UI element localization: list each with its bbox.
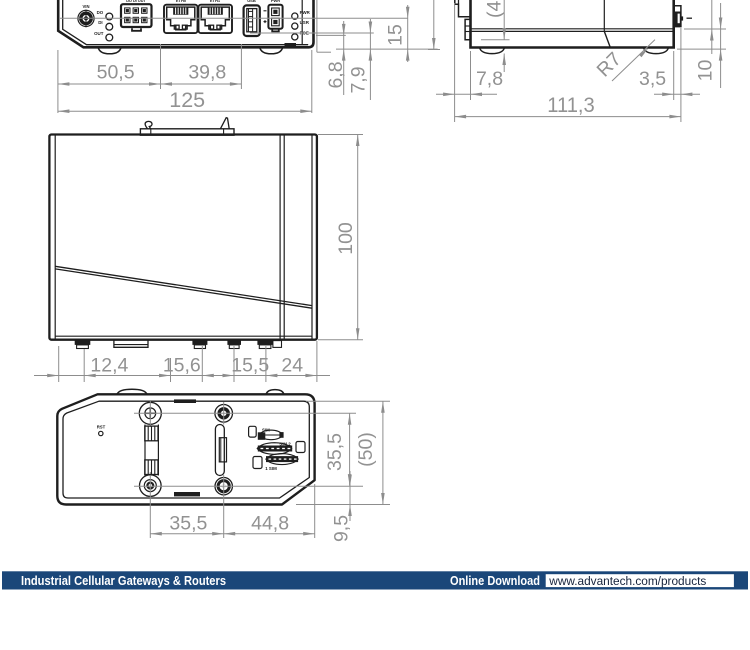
svg-text:35,5: 35,5 bbox=[169, 512, 207, 534]
svg-text:7,9: 7,9 bbox=[348, 66, 370, 93]
svg-text:15,5: 15,5 bbox=[231, 355, 269, 377]
svg-text:35,5: 35,5 bbox=[324, 433, 346, 471]
svg-text:USB: USB bbox=[247, 0, 256, 3]
svg-text:VIN: VIN bbox=[83, 4, 90, 9]
svg-text:(50): (50) bbox=[355, 432, 377, 467]
svg-text:50,5: 50,5 bbox=[97, 61, 135, 83]
svg-text:100: 100 bbox=[335, 222, 357, 255]
svg-text:RST: RST bbox=[97, 424, 106, 429]
svg-text:7,8: 7,8 bbox=[476, 68, 503, 90]
svg-text:3,5: 3,5 bbox=[639, 68, 666, 90]
svg-text:DO: DO bbox=[97, 10, 104, 15]
svg-text:44,8: 44,8 bbox=[251, 512, 289, 534]
svg-text:6,8: 6,8 bbox=[325, 61, 347, 88]
svg-text:Industrial Cellular Gateways &: Industrial Cellular Gateways & Routers bbox=[21, 573, 226, 588]
svg-text:125: 125 bbox=[169, 88, 205, 112]
svg-text:OUT: OUT bbox=[94, 31, 104, 36]
svg-text:DI: DI bbox=[98, 20, 102, 25]
svg-text:111,3: 111,3 bbox=[547, 93, 595, 117]
svg-text:DO DI OUT: DO DI OUT bbox=[126, 0, 146, 3]
svg-text:ETH1: ETH1 bbox=[210, 0, 221, 3]
svg-text:15,6: 15,6 bbox=[163, 355, 201, 377]
svg-text:39,8: 39,8 bbox=[188, 61, 226, 83]
svg-text:(4: (4 bbox=[484, 1, 506, 18]
svg-text:15: 15 bbox=[385, 24, 407, 46]
svg-text:Online Download: Online Download bbox=[450, 573, 540, 588]
svg-text:1 SIM: 1 SIM bbox=[265, 466, 277, 471]
svg-text:24: 24 bbox=[281, 355, 303, 377]
svg-text:www.advantech.com/products: www.advantech.com/products bbox=[548, 574, 706, 588]
svg-text:9,5: 9,5 bbox=[331, 515, 353, 542]
svg-text:PWR: PWR bbox=[271, 0, 280, 3]
svg-text:ETH0: ETH0 bbox=[176, 0, 187, 3]
svg-text:12,4: 12,4 bbox=[90, 355, 128, 377]
svg-text:PWR: PWR bbox=[300, 10, 311, 15]
svg-text:10: 10 bbox=[695, 60, 717, 82]
svg-text:USR: USR bbox=[300, 20, 310, 25]
